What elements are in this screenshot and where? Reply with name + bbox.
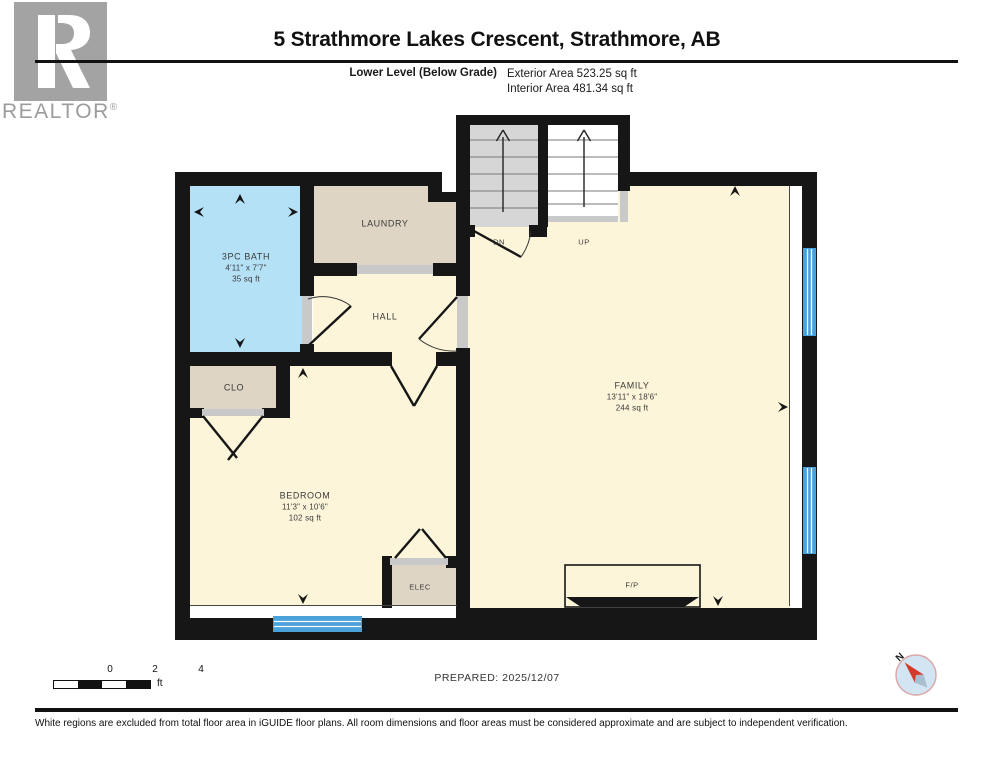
- prepared-date: PREPARED: 2025/12/07: [0, 672, 994, 684]
- room-dims: 13'11" x 18'6": [607, 392, 658, 403]
- room-name: CLO: [224, 383, 244, 394]
- stairs-landing-sill: [548, 216, 618, 222]
- compass-icon: N: [885, 646, 947, 708]
- stairs-up-flight: [548, 123, 618, 222]
- stairs-dn-label: DN: [493, 237, 505, 248]
- room-dims: 11'3" x 10'6": [280, 502, 331, 513]
- room-name: 3PC BATH: [222, 252, 270, 263]
- laundry-opening-sill: [357, 265, 433, 274]
- closet-door-sill: [202, 409, 264, 416]
- room-name: FAMILY: [607, 381, 658, 392]
- room-label-elec: ELEC: [409, 582, 431, 593]
- bath-door-sill: [302, 296, 312, 344]
- footer-rule: [35, 708, 958, 712]
- stairs-side-sill: [620, 186, 628, 222]
- room-label-bedroom: BEDROOM 11'3" x 10'6" 102 sq ft: [280, 491, 331, 524]
- room-name: HALL: [373, 312, 398, 323]
- disclaimer-text: White regions are excluded from total fl…: [35, 718, 960, 729]
- stairs-up-label: UP: [578, 237, 589, 248]
- room-dims: 4'11" x 7'7": [222, 263, 270, 274]
- room-label-hall: HALL: [373, 312, 398, 323]
- excluded-strip-right: [790, 186, 803, 606]
- fireplace-hearth: [566, 597, 699, 607]
- floorplan-page: REALTOR® 5 Strathmore Lakes Crescent, St…: [0, 0, 994, 768]
- room-area: 244 sq ft: [607, 403, 658, 414]
- room-label-laundry: LAUNDRY: [361, 219, 408, 230]
- fireplace-label: F/P: [625, 580, 638, 591]
- room-label-family: FAMILY 13'11" x 18'6" 244 sq ft: [607, 381, 658, 414]
- window-bedroom-bottom: [273, 616, 362, 632]
- room-label-bath: 3PC BATH 4'11" x 7'7" 35 sq ft: [222, 252, 270, 285]
- room-name: LAUNDRY: [361, 219, 408, 230]
- room-area: 102 sq ft: [280, 513, 331, 524]
- room-hall-area: [313, 266, 457, 354]
- room-name: BEDROOM: [280, 491, 331, 502]
- floor-plan-svg: [0, 0, 994, 768]
- room-label-closet: CLO: [224, 383, 244, 394]
- elec-door-sill: [390, 558, 448, 565]
- window-family-right-lower: [803, 467, 816, 554]
- window-family-right-upper: [803, 248, 816, 336]
- room-area: 35 sq ft: [222, 274, 270, 285]
- room-name: ELEC: [409, 582, 431, 593]
- room-name: F/P: [625, 580, 638, 591]
- hall-family-door-sill: [457, 296, 468, 348]
